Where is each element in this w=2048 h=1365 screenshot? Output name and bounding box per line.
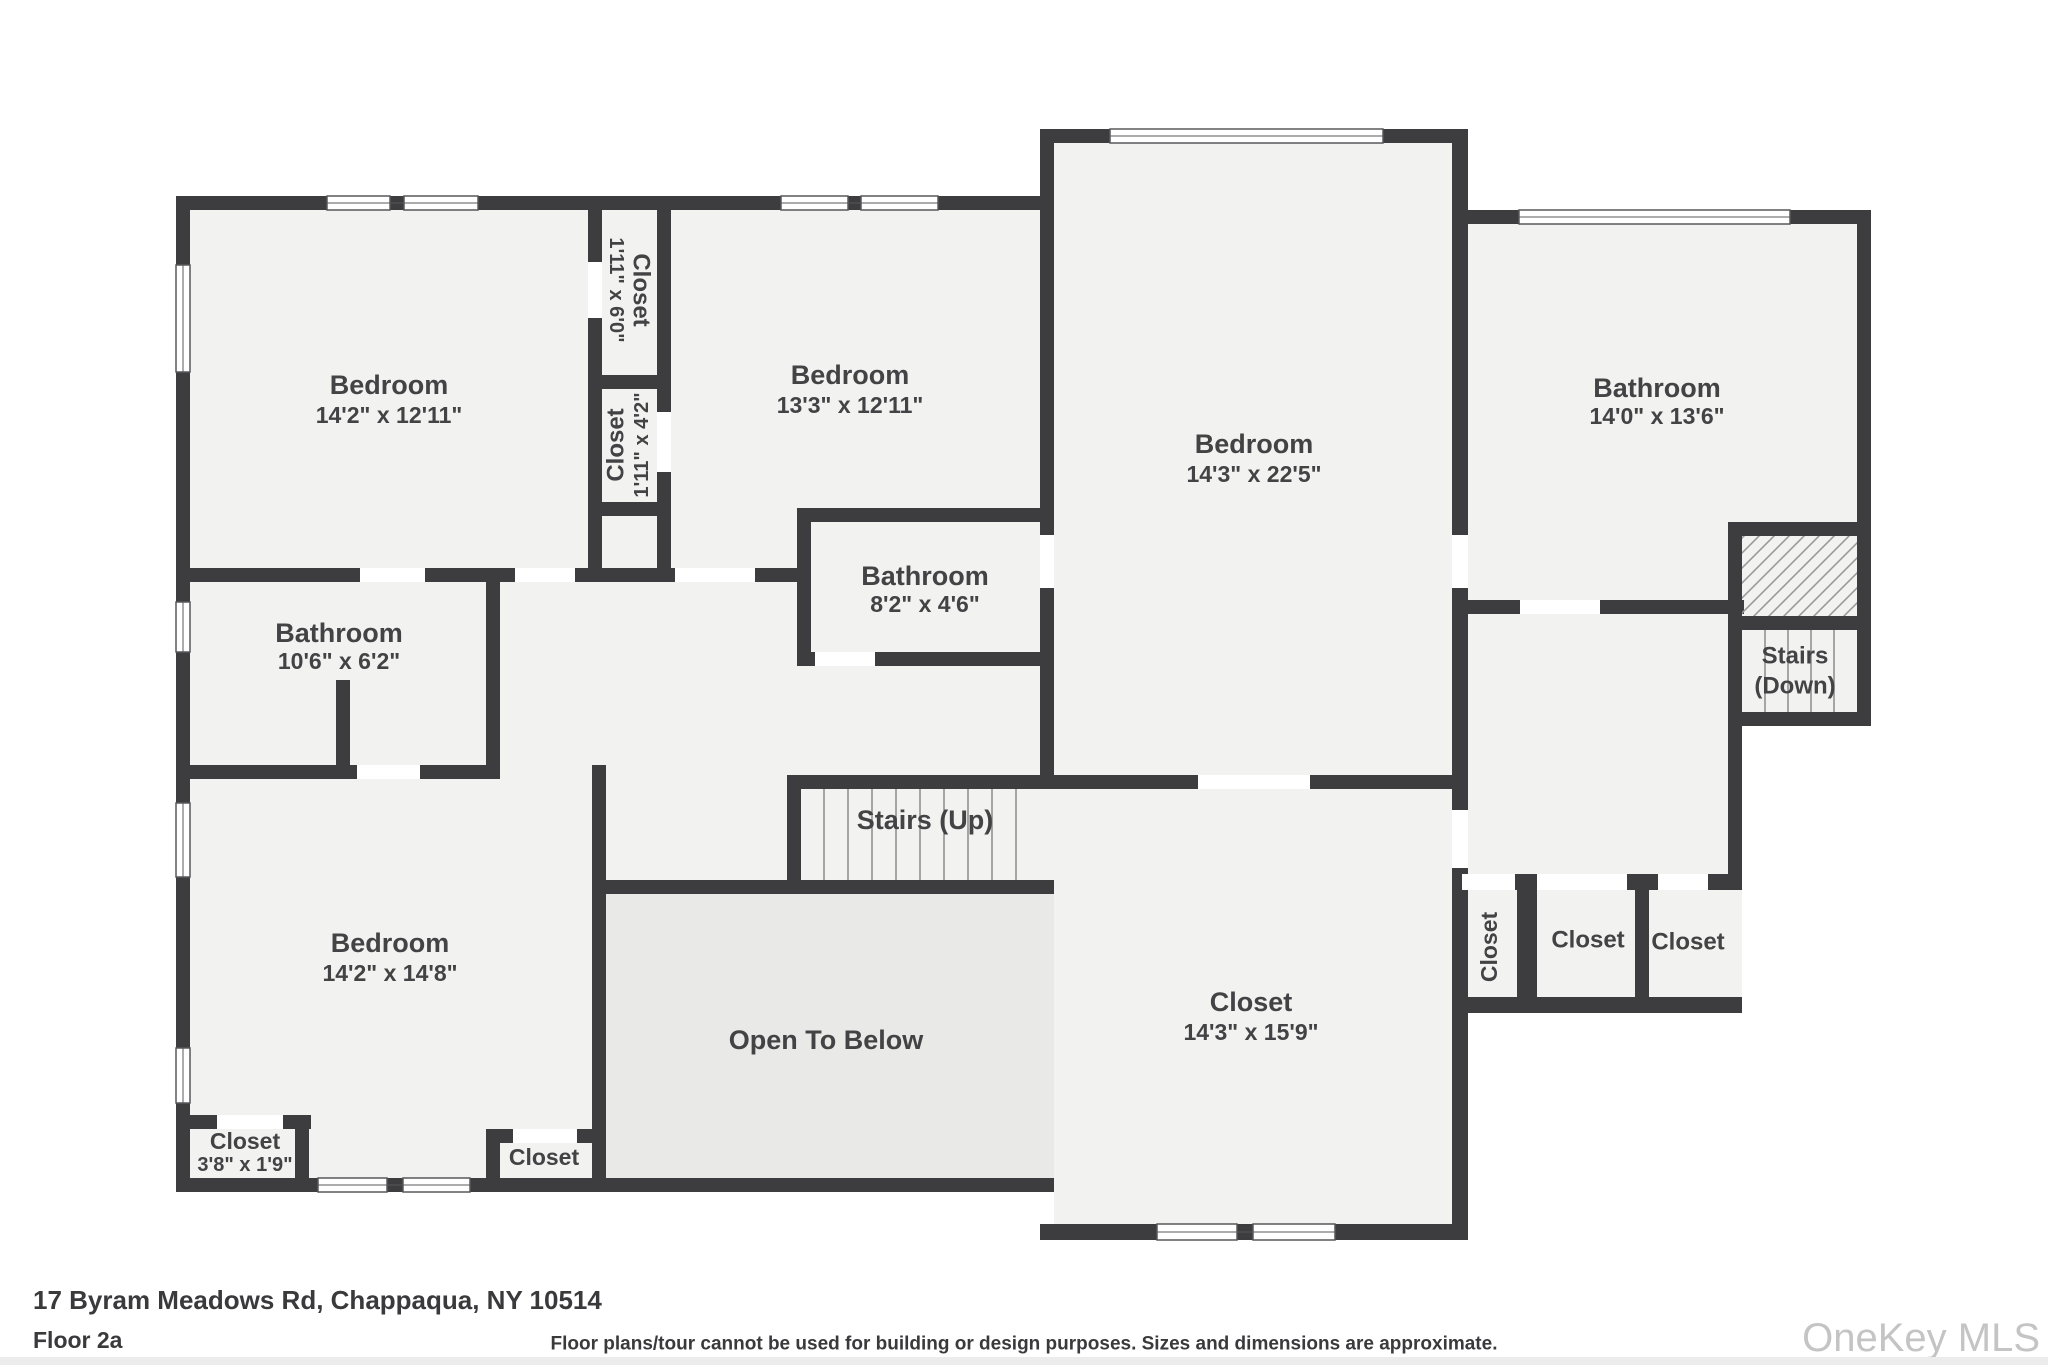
room-dims-bedroom-top-left: 14'2" x 12'11": [316, 402, 463, 428]
wall: [1517, 890, 1537, 997]
door-opening: [1198, 775, 1310, 789]
room-label-bedroom-top-left: Bedroom: [330, 370, 449, 400]
room-label-closet-right-1: Closet: [1476, 912, 1502, 983]
door-opening: [675, 568, 755, 582]
room-label-closet-room: Closet: [1210, 987, 1293, 1017]
wall: [295, 1115, 309, 1192]
room-dims-bedroom-bottom-left: 14'2" x 14'8": [322, 960, 457, 986]
door-opening: [217, 1115, 283, 1129]
room-label-bathroom-left: Bathroom: [275, 618, 403, 648]
room-label-bedroom-top-middle: Bedroom: [791, 360, 910, 390]
room-label-stairs-down-line1: Stairs: [1762, 643, 1829, 670]
right-strip-floor: [1742, 224, 1857, 712]
room-label-stairs-up: Stairs (Up): [857, 805, 994, 835]
wall: [1635, 890, 1649, 997]
room-dims-closet-lower: 1'11" x 4'2": [631, 392, 653, 497]
room-label-closet-right-3: Closet: [1651, 929, 1724, 956]
wall: [797, 508, 1054, 522]
wall: [1857, 210, 1871, 726]
footer-divider-strip: [0, 1357, 2048, 1365]
wall: [588, 502, 671, 516]
footer: 17 Byram Meadows Rd, Chappaqua, NY 10514…: [0, 1285, 2048, 1365]
property-address: 17 Byram Meadows Rd, Chappaqua, NY 10514: [33, 1285, 602, 1315]
wall: [787, 775, 1468, 789]
room-label-open-to-below: Open To Below: [729, 1025, 924, 1055]
room-label-bathroom-middle: Bathroom: [861, 561, 989, 591]
room-label-bedroom-tall: Bedroom: [1195, 429, 1314, 459]
floor-plan-page: Bedroom 14'2" x 12'11" Closet 1'11" x 6'…: [0, 0, 2048, 1365]
wall: [797, 508, 811, 666]
wall: [787, 775, 801, 880]
floor-plan-drawing: Bedroom 14'2" x 12'11" Closet 1'11" x 6'…: [0, 0, 2048, 1365]
door-opening: [815, 652, 875, 666]
middle-block-floor: [1054, 143, 1452, 1224]
wall: [1728, 522, 1871, 536]
room-dims-bathroom-middle: 8'2" x 4'6": [870, 591, 980, 617]
wall: [176, 765, 500, 779]
room-dims-closet-upper: 1'11" x 6'0": [605, 237, 627, 342]
room-label-closet-bottom-mid: Closet: [509, 1144, 580, 1170]
wall: [588, 375, 671, 389]
room-label-closet-upper: Closet: [628, 253, 655, 326]
room-dims-bedroom-top-middle: 13'3" x 12'11": [777, 392, 924, 418]
door-opening: [1040, 535, 1054, 588]
door-opening: [588, 262, 602, 318]
room-dims-closet-bottom-left: 3'8" x 1'9": [197, 1154, 292, 1176]
room-label-bedroom-bottom-left: Bedroom: [331, 928, 450, 958]
door-opening: [657, 412, 671, 472]
wall: [1728, 712, 1871, 726]
room-label-closet-bottom-left: Closet: [210, 1128, 281, 1154]
onekey-mls-watermark: OneKey MLS: [1802, 1316, 2040, 1360]
stairwell-hatch-area: [1742, 536, 1857, 616]
door-opening: [1658, 874, 1708, 890]
door-opening: [360, 568, 425, 582]
door-opening: [1452, 810, 1468, 868]
wall: [1728, 616, 1871, 630]
wall: [1040, 143, 1054, 775]
door-opening: [357, 765, 420, 779]
door-opening: [1520, 600, 1600, 614]
wall: [1728, 522, 1742, 890]
room-label-stairs-down-line2: (Down): [1754, 673, 1835, 700]
floor-label: Floor 2a: [33, 1327, 123, 1353]
door-opening: [1452, 535, 1468, 588]
wall: [592, 880, 1054, 894]
room-dims-bedroom-tall: 14'3" x 22'5": [1186, 461, 1321, 487]
floor-fills: [190, 143, 1857, 1224]
room-label-closet-lower: Closet: [603, 408, 630, 481]
wall: [336, 680, 350, 765]
room-label-closet-right-2: Closet: [1551, 927, 1624, 954]
wall: [1452, 129, 1468, 1240]
room-dims-bathroom-left: 10'6" x 6'2": [278, 648, 400, 674]
door-opening: [513, 1129, 577, 1143]
wall: [1452, 997, 1742, 1013]
wall: [592, 765, 606, 1192]
wall: [486, 568, 500, 779]
room-dims-closet-room: 14'3" x 15'9": [1183, 1019, 1318, 1045]
door-opening: [1462, 874, 1515, 890]
disclaimer-text: Floor plans/tour cannot be used for buil…: [551, 1334, 1498, 1355]
wall: [657, 210, 671, 582]
room-label-bathroom-right: Bathroom: [1593, 373, 1721, 403]
door-opening: [515, 568, 575, 582]
room-dims-bathroom-right: 14'0" x 13'6": [1589, 403, 1724, 429]
door-opening: [1537, 874, 1627, 890]
